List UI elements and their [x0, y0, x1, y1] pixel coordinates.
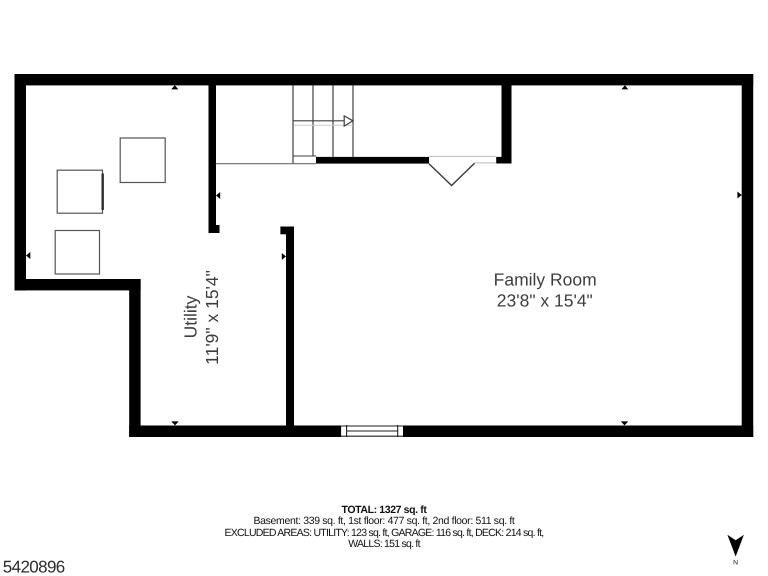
svg-text:23'8" x 15'4": 23'8" x 15'4": [497, 291, 593, 311]
svg-text:WALLS: 151 sq. ft: WALLS: 151 sq. ft: [348, 538, 420, 550]
svg-text:11'9" x 15'4": 11'9" x 15'4": [202, 270, 222, 365]
svg-text:Family Room: Family Room: [494, 270, 597, 290]
svg-text:Utility: Utility: [181, 295, 201, 338]
svg-text:Basement: 339 sq. ft, 1st floo: Basement: 339 sq. ft, 1st floor: 477 sq.…: [253, 515, 514, 527]
svg-text:5420896: 5420896: [3, 557, 65, 576]
svg-text:N: N: [733, 560, 738, 567]
svg-text:EXCLUDED AREAS: UTILITY: 123 s: EXCLUDED AREAS: UTILITY: 123 sq. ft, GAR…: [225, 527, 544, 539]
